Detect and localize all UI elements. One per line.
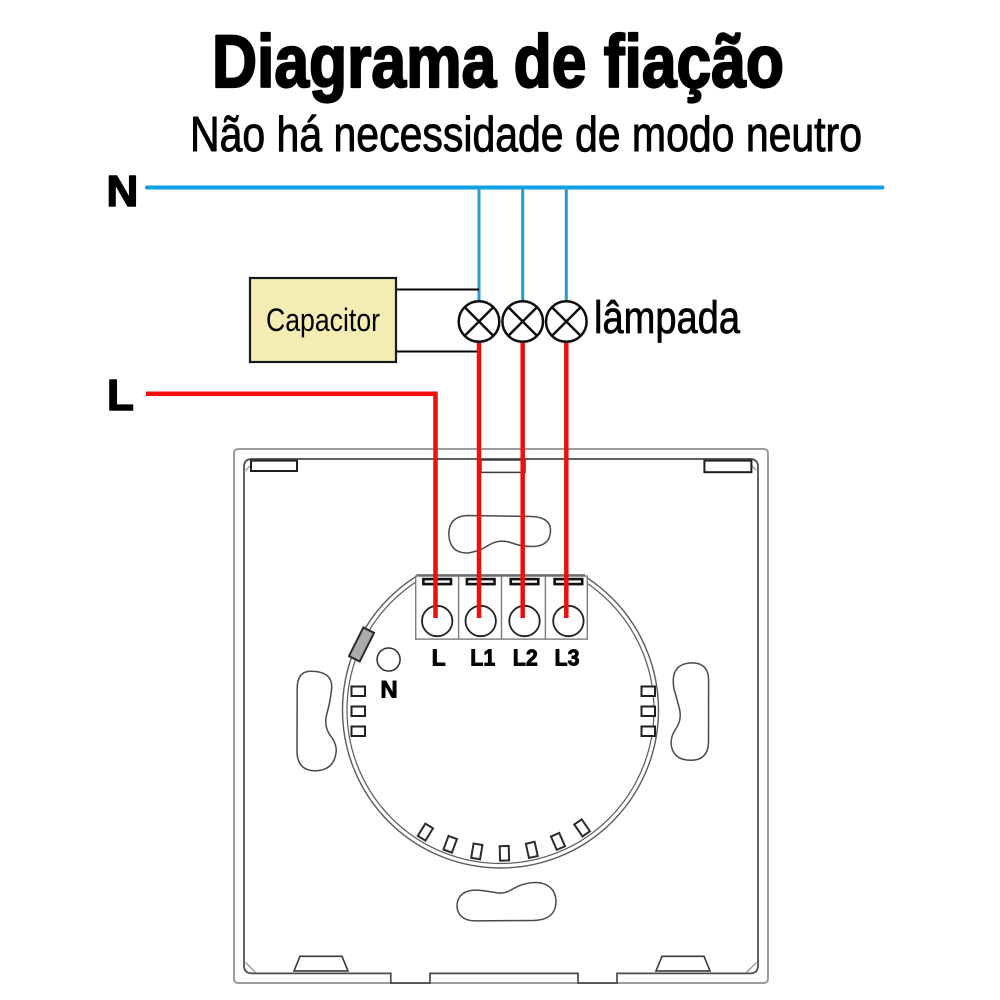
svg-text:L: L bbox=[432, 644, 446, 670]
svg-text:L: L bbox=[107, 371, 134, 420]
svg-text:lâmpada: lâmpada bbox=[594, 292, 741, 343]
svg-text:Não há necessidade de modo neu: Não há necessidade de modo neutro bbox=[190, 108, 862, 162]
svg-text:Diagrama de fiação: Diagrama de fiação bbox=[212, 20, 784, 103]
svg-text:L2: L2 bbox=[513, 644, 538, 670]
svg-text:L1: L1 bbox=[470, 644, 495, 670]
svg-text:L3: L3 bbox=[555, 644, 580, 670]
svg-text:N: N bbox=[380, 677, 397, 704]
svg-text:Capacitor: Capacitor bbox=[266, 302, 380, 338]
svg-text:N: N bbox=[107, 167, 139, 216]
